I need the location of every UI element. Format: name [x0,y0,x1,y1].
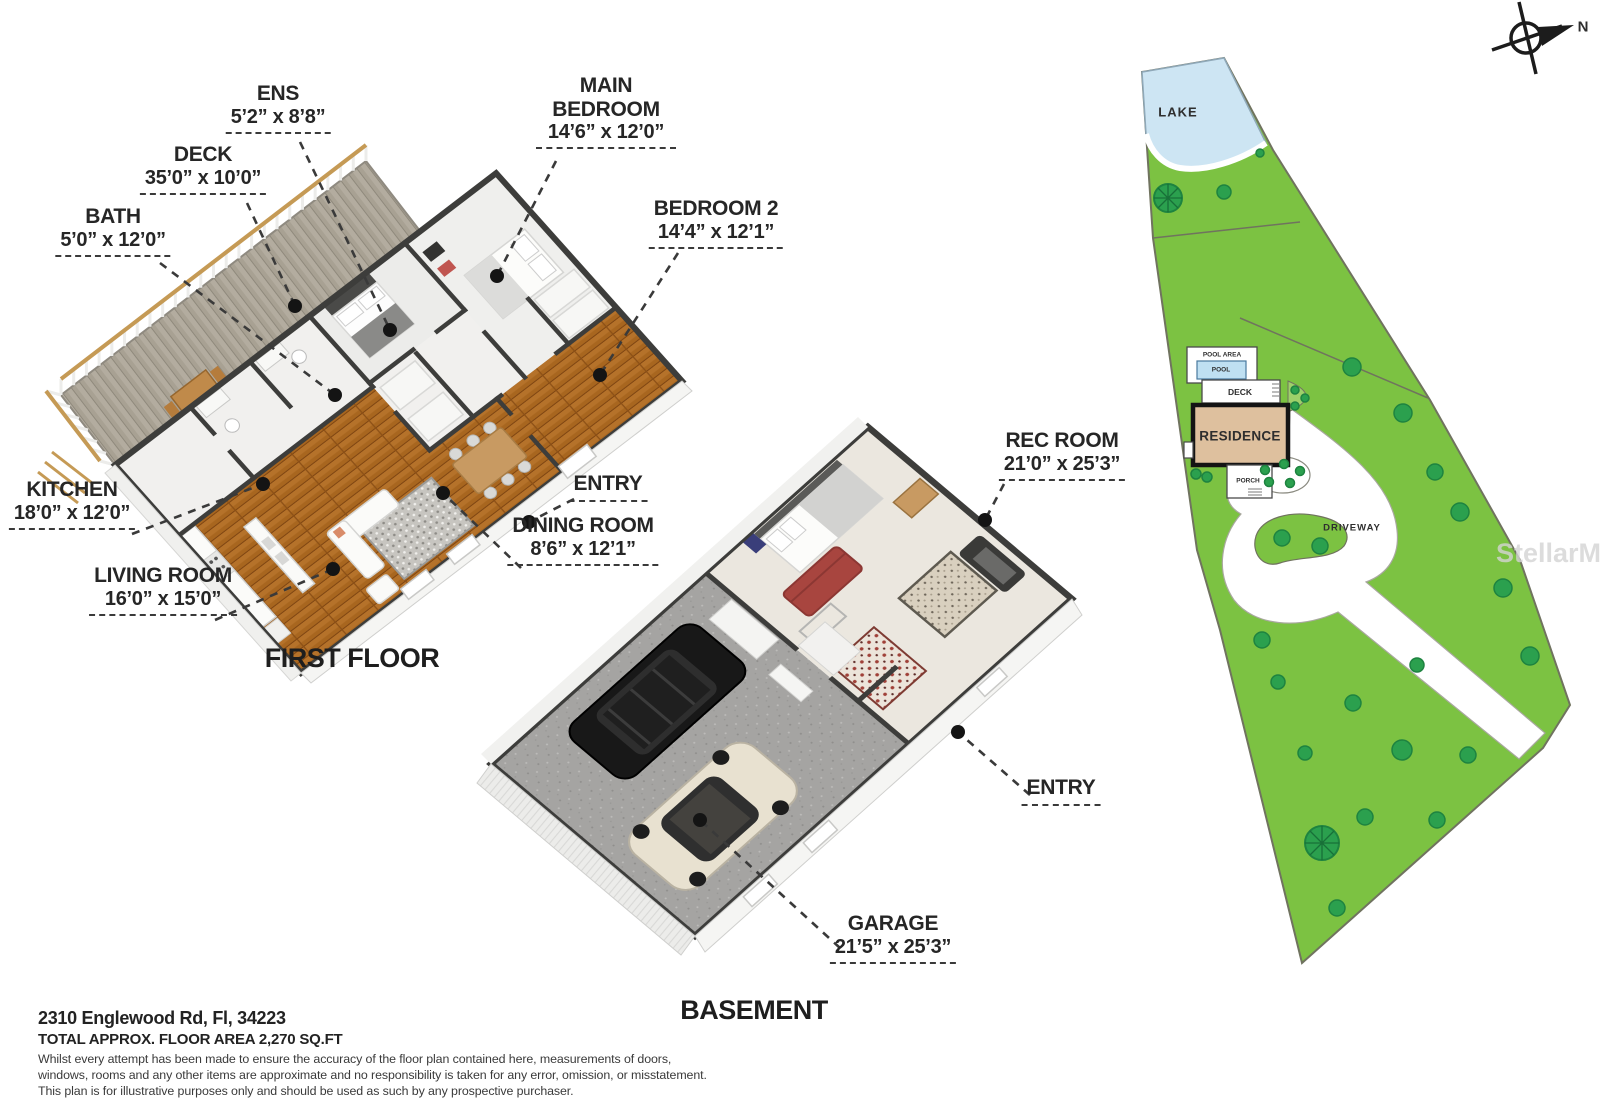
room-name: REC ROOM [1004,429,1120,453]
room-name: KITCHEN [14,478,130,502]
floorplan-page: { "first_floor": { "title": "FIRST FLOOR… [0,0,1600,1108]
label-rec-room: REC ROOM 21’0” x 25’3” [999,429,1125,481]
room-dims: 5’0” x 12’0” [60,229,165,251]
room-dims: 21’0” x 25’3” [1004,453,1120,475]
driveway-label: DRIVEWAY [1323,523,1381,534]
label-kitchen: KITCHEN 18’0” x 12’0” [9,478,135,530]
label-entry-basement: ENTRY [1022,776,1101,806]
room-dims: 14’6” x 12’0” [541,121,671,143]
residence-label: RESIDENCE [1199,429,1280,444]
label-entry-first-floor: ENTRY [569,472,648,502]
label-living-room: LIVING ROOM 16’0” x 15’0” [89,564,237,616]
room-name: BATH [60,205,165,229]
compass-icon [1492,2,1574,74]
lake-label: LAKE [1158,105,1197,120]
label-bath: BATH 5’0” x 12’0” [55,205,170,257]
room-name: MAIN BEDROOM [541,74,671,121]
room-name: DINING ROOM [512,514,653,538]
label-bedroom-2: BEDROOM 2 14’4” x 12’1” [649,197,783,249]
pool-area-label: POOL AREA [1203,352,1241,359]
room-dims: 16’0” x 15’0” [94,588,232,610]
porch-label: PORCH [1236,478,1259,485]
total-floor-area: TOTAL APPROX. FLOOR AREA 2,270 SQ.FT [38,1031,343,1048]
residence-bump [1184,442,1193,458]
disclaimer-line-1: Whilst every attempt has been made to en… [38,1052,671,1066]
room-name: ENS [231,82,326,106]
label-garage: GARAGE 21’5” x 25’3” [830,912,956,964]
compass-north-label: N [1578,19,1589,36]
room-name: GARAGE [835,912,951,936]
disclaimer-line-3: This plan is for illustrative purposes o… [38,1084,574,1098]
label-deck: DECK 35’0” x 10’0” [140,143,266,195]
room-name: BEDROOM 2 [654,197,778,221]
property-address: 2310 Englewood Rd, Fl, 34223 [38,1008,286,1029]
room-dims: 35’0” x 10’0” [145,167,261,189]
room-dims: 18’0” x 12’0” [14,502,130,524]
disclaimer-line-2: windows, rooms and any other items are a… [38,1068,707,1082]
room-dims: 14’4” x 12’1” [654,221,778,243]
room-name: LIVING ROOM [94,564,232,588]
room-name: ENTRY [1027,776,1096,800]
label-main-bedroom: MAIN BEDROOM 14’6” x 12’0” [536,74,676,149]
watermark: StellarMLS [1496,538,1600,569]
room-name: ENTRY [574,472,643,496]
basement-title: BASEMENT [680,995,828,1026]
room-name: DECK [145,143,261,167]
room-dims: 8’6” x 12’1” [512,538,653,560]
label-dining-room: DINING ROOM 8’6” x 12’1” [507,514,658,566]
room-dims: 21’5” x 25’3” [835,936,951,958]
site-plan [1142,58,1570,963]
first-floor-title: FIRST FLOOR [265,643,439,674]
room-dims: 5’2” x 8’8” [231,106,326,128]
pool-label: POOL [1212,367,1230,374]
site-deck-label: DECK [1228,387,1252,397]
label-ens: ENS 5’2” x 8’8” [226,82,331,134]
